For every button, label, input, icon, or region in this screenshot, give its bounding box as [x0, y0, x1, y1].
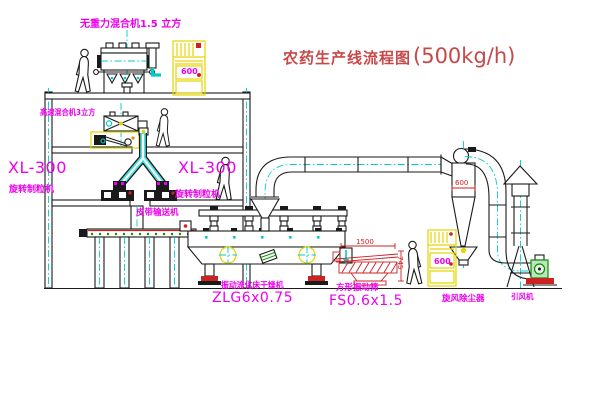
cyclone-drawing [450, 141, 477, 268]
dimension-cyclone-outlet: 600 [455, 180, 468, 187]
cabinet2-display: 600 [434, 258, 451, 266]
granulator-right [144, 181, 177, 201]
person-1 [75, 49, 90, 92]
spring-mounts [210, 216, 346, 231]
belt-conveyor-drawing [79, 229, 196, 288]
label-screen-model: FS0.6x1.5 [329, 294, 403, 308]
label-dryer-model: ZLG6x0.75 [212, 291, 293, 305]
label-cyclone-name: 旋风除尘器 [442, 295, 485, 304]
induced-draft-fan-drawing [523, 255, 557, 285]
label-fan-name: 引风机 [511, 293, 534, 301]
label-screen-name: 方形振动筛 [336, 284, 379, 293]
pesticide-line-flow-diagram: 农药生产线流程图(500kg/h) 无重力混合机1.5 立方 高速混合机3立方 … [0, 0, 600, 403]
granulator-left [101, 181, 134, 201]
dimension-screen-length: 1500 [356, 239, 374, 246]
title-capacity: (500kg/h) [413, 44, 515, 68]
dimension-screen-height: 745 [396, 256, 403, 269]
person-4 [407, 241, 422, 284]
label-belt-conveyor: 皮带输送机 [136, 209, 179, 218]
label-granulator-left-name: 旋转制粒机 [9, 186, 54, 195]
title-text: 农药生产线流程图 [283, 49, 411, 67]
person-2 [156, 109, 169, 147]
label-highspeed-mixer: 高速混合机3立方 [40, 109, 95, 117]
label-granulator-left-model: XL-300 [8, 160, 67, 176]
label-granulator-right-model: XL-300 [178, 160, 237, 176]
label-granulator-right-name: 旋转制粒机 [175, 191, 220, 200]
cabinet1-display: 600 [181, 68, 198, 76]
gravity-mixer-drawing [94, 30, 161, 93]
diagram-title: 农药生产线流程图(500kg/h) [283, 46, 515, 67]
label-gravity-mixer: 无重力混合机1.5 立方 [80, 20, 181, 30]
